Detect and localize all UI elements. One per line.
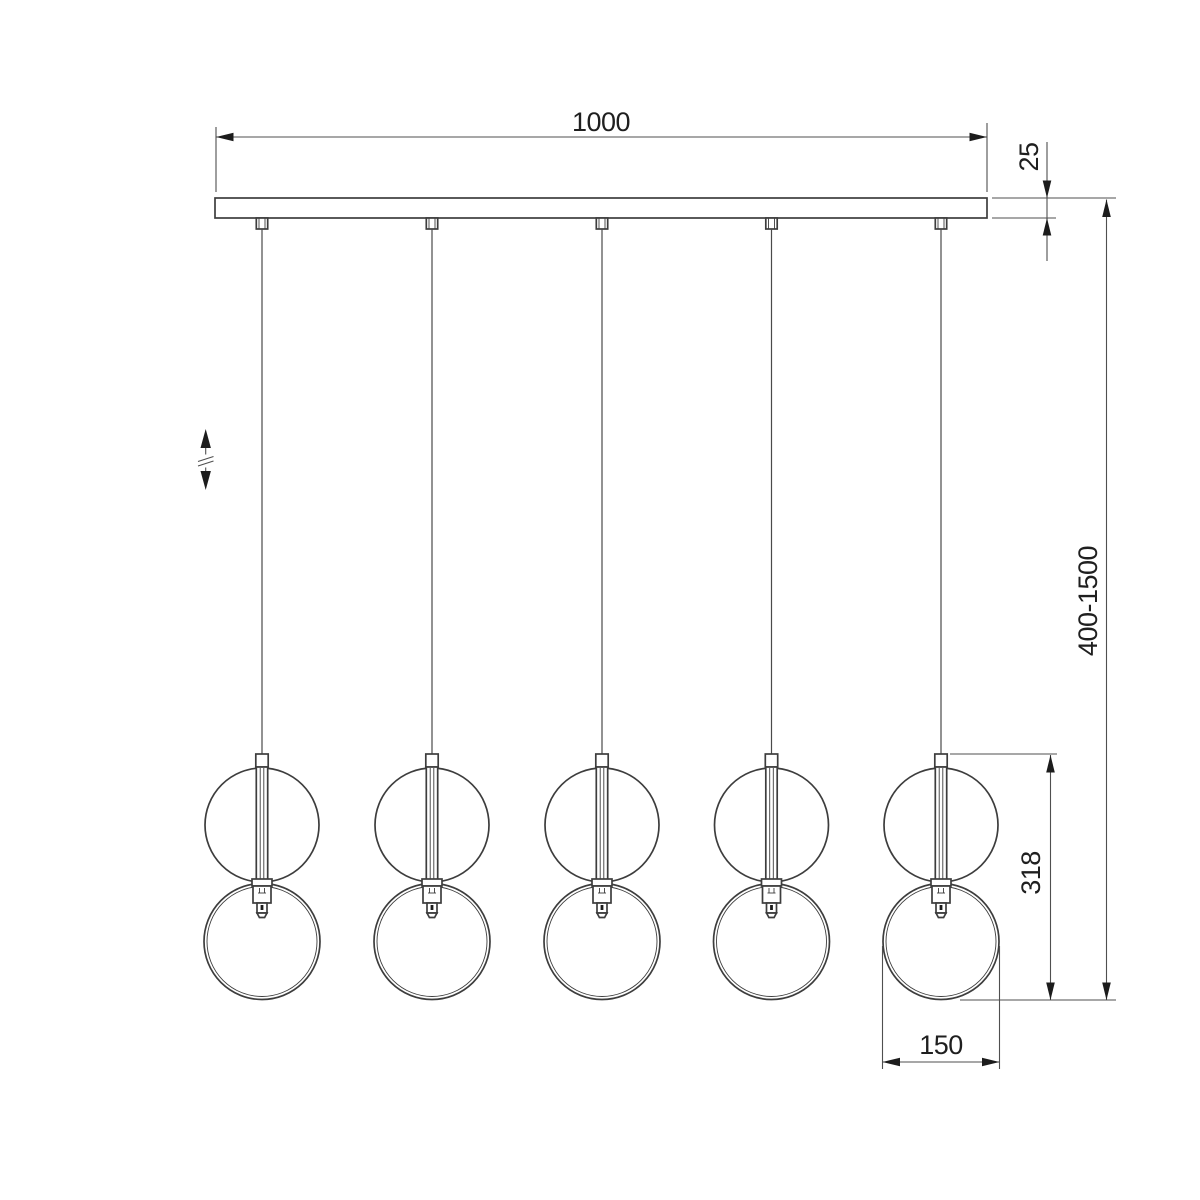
arrowhead-down bbox=[1102, 983, 1111, 1001]
arrowhead-left bbox=[883, 1058, 901, 1067]
dimension-ring-diameter: 150 bbox=[883, 946, 1000, 1069]
arrowhead-up bbox=[1043, 218, 1052, 236]
arrowhead-left bbox=[216, 133, 234, 142]
break-mark bbox=[198, 457, 214, 462]
dim-label-ring-diameter: 150 bbox=[919, 1030, 963, 1060]
pendant-4 bbox=[714, 218, 830, 1000]
dimension-canopy-length: 1000 bbox=[216, 107, 987, 192]
arrowhead-right bbox=[970, 133, 988, 142]
arrowhead-down bbox=[1046, 983, 1055, 1001]
pendant-3 bbox=[544, 218, 660, 1000]
dim-label-pendant-height: 318 bbox=[1016, 851, 1046, 895]
technical-drawing-canvas: 1000 25 400-1500 318 150 bbox=[0, 0, 1200, 1200]
adjust-arrow-up bbox=[201, 429, 211, 448]
arrowhead-up bbox=[1046, 755, 1055, 773]
ceiling-plate bbox=[215, 198, 987, 218]
pendant-2 bbox=[374, 218, 490, 1000]
pendant-1 bbox=[204, 218, 320, 1000]
dimension-pendant-height: 318 bbox=[950, 754, 1116, 1000]
pendant-5 bbox=[883, 218, 999, 1000]
arrowhead-down bbox=[1043, 181, 1052, 199]
dimension-suspension-range: 400-1500 bbox=[1073, 200, 1111, 1001]
height-adjust-icon bbox=[198, 429, 214, 490]
dim-label-canopy-thickness: 25 bbox=[1014, 142, 1044, 171]
arrowhead-right bbox=[982, 1058, 1000, 1067]
dim-label-canopy-length: 1000 bbox=[572, 107, 630, 137]
dim-label-suspension-range: 400-1500 bbox=[1073, 546, 1103, 656]
arrowhead-up bbox=[1102, 200, 1111, 218]
dimension-canopy-thickness: 25 bbox=[992, 142, 1116, 261]
adjust-arrow-down bbox=[201, 471, 211, 490]
break-mark bbox=[198, 461, 214, 466]
